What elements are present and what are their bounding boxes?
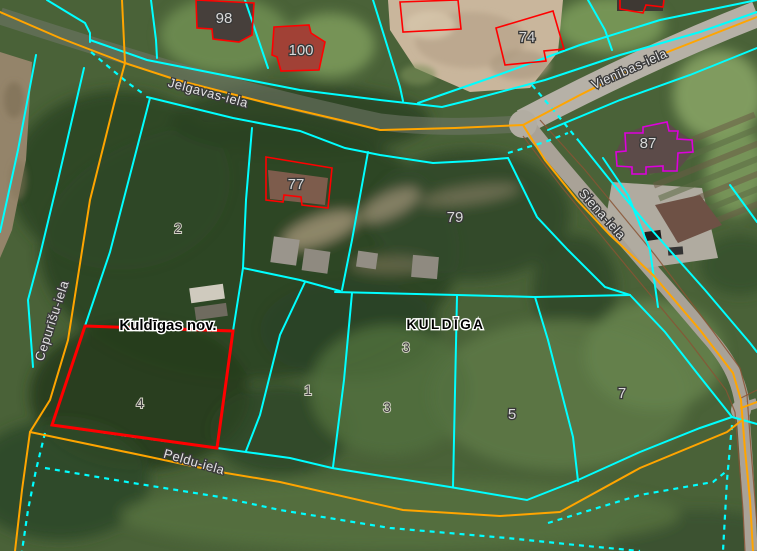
ruin-4	[411, 255, 439, 279]
address-number-100: 100	[288, 42, 313, 59]
address-number-79: 79	[447, 209, 464, 226]
municipality-label: Kuldīgas nov.	[119, 317, 216, 334]
parcel-number-2: 2	[174, 221, 182, 236]
parcel-number-3-lower: 3	[383, 400, 391, 415]
address-number-98: 98	[216, 10, 233, 27]
address-number-7: 7	[618, 385, 626, 402]
city-label: KULDĪGA	[407, 317, 486, 332]
parcel-number-1: 1	[304, 383, 312, 398]
address-number-74: 74	[519, 29, 536, 46]
map-canvas[interactable]: Jelgavas-iela Vienības-iela Siena-iela C…	[0, 0, 757, 551]
ruin-2	[302, 248, 331, 273]
map-viewport[interactable]: Jelgavas-iela Vienības-iela Siena-iela C…	[0, 0, 757, 551]
address-number-77: 77	[288, 176, 305, 193]
parcel-number-4: 4	[136, 396, 144, 411]
address-number-87: 87	[640, 135, 657, 152]
parcel-number-3-upper: 3	[402, 340, 410, 355]
ruin-1	[270, 236, 299, 265]
ruin-3	[356, 251, 378, 270]
aerial-photo	[0, 0, 757, 551]
address-number-5: 5	[508, 406, 516, 423]
